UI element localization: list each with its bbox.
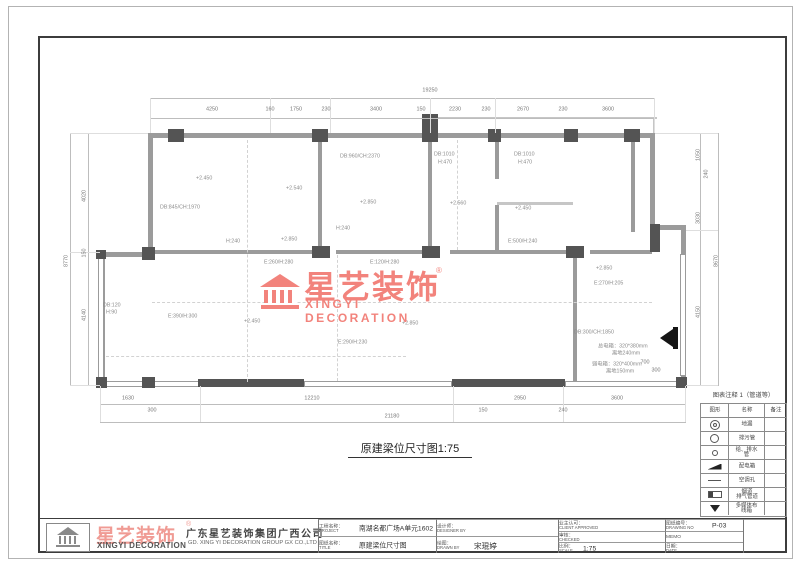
window [565,381,679,387]
multimedia-box-icon [710,505,720,512]
titleblock-cell-client: 业主认可：CLIENT APPROVED [558,519,665,531]
legend-name-cell: 排污管 [729,432,765,445]
column [422,246,440,258]
dimension-line [88,133,89,386]
company-name-en: GD. XING YI DECORATION GROUP GX CO.,LTD [188,539,317,545]
floor-drain-icon [710,420,720,430]
field-value: 宋琨婷 [474,539,497,550]
entry-arrow-icon [673,327,678,349]
column [564,129,578,142]
dimension-line [150,98,655,99]
dimension-line [70,133,71,386]
extension-line [686,230,718,231]
extension-line [654,98,655,133]
drawing-sheet: 1925021180425016017502303400150223023026… [0,0,800,564]
plan-label: DB:120 [103,302,121,308]
plan-label: H:90 [106,309,117,315]
window [304,381,452,387]
dim-label: 150 [416,106,425,112]
dim-label: 300 [651,367,660,373]
extension-line [430,98,431,133]
legend-name: 给、排水管 [735,447,759,458]
legend-note-cell [765,502,786,515]
dim-label: 2670 [517,106,529,112]
window [98,256,104,378]
legend-note-cell [765,418,786,431]
column [566,246,584,258]
titleblock-cell-blank [743,519,785,553]
water-pipe-icon [712,450,718,456]
extension-line [150,98,151,133]
legend-row: 空调孔 [701,474,786,488]
legend-header-row: 图形 名称 备注 [701,404,786,418]
plan-label: DB:300/CH:1850 [574,329,614,335]
plan-label: H:240 [336,225,350,231]
dim-label: 300 [147,407,156,413]
field-label: 日期：DATE [666,544,680,553]
column [624,129,640,142]
dim-label: 230 [481,106,490,112]
legend-name-cell: 多媒体布线箱 [729,502,765,515]
watermark-en-text: XINGYI DECORATION [305,297,456,325]
wall [573,254,577,382]
extension-line [270,98,271,133]
field-label-en: DRAWN BY [437,545,459,549]
wall [428,137,432,250]
extension-line [453,386,454,422]
field-label-en: CHECKED [559,537,580,541]
field-label-cn: 设计师： [437,524,466,529]
legend-symbol-cell [701,460,729,473]
legend-row: 烟道 排气管道 [701,488,786,502]
extension-line [495,98,496,133]
column [142,247,155,260]
dimension-line [150,118,655,119]
legend-name: 空调孔 [738,478,754,484]
wall [150,133,655,138]
wall [497,202,573,205]
dashed-reference-line [457,140,458,250]
company-logo-en: XINGYI DECORATION [97,541,186,550]
wall [336,250,436,254]
logo-base [56,545,80,547]
plan-label: +2.450 [515,205,531,211]
power-box-icon [708,464,722,470]
dashed-reference-line [106,356,406,357]
logo-roof [57,527,79,535]
logo-pillars [264,290,296,303]
plan-label: +2.450 [244,318,260,324]
wall [318,137,322,250]
dim-label: 1630 [122,395,134,401]
legend-name: 配电箱 [738,464,754,470]
dim-label: 2950 [514,395,526,401]
column [312,129,328,142]
plan-label: E:500/H:240 [508,238,537,244]
legend-note-cell [765,474,786,487]
legend-name-cell: 配电箱 [729,460,765,473]
extension-line [655,133,718,134]
titleblock-cell-designer: 设计师：DESIGNER BY [436,519,558,536]
legend-row: 多媒体布线箱 [701,502,786,515]
plan-label: +2.850 [281,236,297,242]
field-label-en: CLIENT APPROVED [559,526,598,530]
field-label: 图纸名称：TITLE [319,541,343,550]
dim-label: 150 [478,407,487,413]
field-label: 审核：CHECKED [559,533,580,542]
wall [495,137,499,179]
xingyi-watermark: 星艺装饰 ® XINGYI DECORATION [246,266,456,318]
plan-label: DB:1010 [514,151,535,157]
plan-label: E:390/H:300 [168,313,197,319]
title-block: 星艺装饰 ® XINGYI DECORATION 广东星艺装饰集团广西公司 GD… [40,518,785,553]
legend-name-cell: 烟道 排气管道 [729,488,765,501]
legend-symbol-cell [701,502,729,515]
dim-label: 12210 [304,395,319,401]
flue-icon [708,491,722,498]
titleblock-cell-scale: 比例：SCALE 1:75 [558,542,665,553]
dim-label: 240 [558,407,567,413]
legend-name: 排污管 [738,436,754,442]
legend-header-label: 备注 [770,408,781,414]
wall-segment [198,379,304,387]
legend-header-label: 名称 [741,408,752,414]
plan-label: +2.540 [286,185,302,191]
legend-row: 排污管 [701,432,786,446]
plan-label: H:240 [226,238,240,244]
legend-name-cell: 给、排水管 [729,446,765,459]
legend-symbol-cell [701,418,729,431]
dim-label: 700 [640,359,649,365]
legend-note-cell [765,460,786,473]
field-value: 南湖名都广场A单元1602 [359,523,433,532]
field-value: P-03 [712,522,726,530]
wall [590,250,652,254]
legend-symbol-cell [701,474,729,487]
column [96,377,107,388]
dim-label: 230 [558,106,567,112]
ac-hole-icon [708,480,721,481]
company-name-cn: 广东星艺装饰集团广西公司 [186,525,324,540]
wall-segment [452,379,565,387]
titleblock-cell-date: 日期：DATE [665,542,743,553]
plan-label: DB:845/CH:1970 [160,204,200,210]
legend-name: 地漏 [741,422,752,428]
field-label-en: DESIGNER BY [437,528,466,532]
legend-name: 多媒体布线箱 [735,503,759,514]
plan-label: 离地240mm [612,349,640,356]
plan-label: DB:960/CH:2370 [340,153,380,159]
field-label-en: PROJECT [319,528,343,532]
extension-line [100,386,101,422]
wall [450,250,576,254]
extension-line [685,386,686,422]
dim-label: 4150 [695,306,701,318]
legend-row: 配电箱 [701,460,786,474]
dim-label: 3600 [602,106,614,112]
wall [495,205,499,254]
legend-symbol-cell [701,488,729,501]
field-value: 1:75 [583,544,596,552]
field-label-en: SCALE [559,548,573,552]
plan-label: +2.850 [360,199,376,205]
plan-label: +2.850 [596,265,612,271]
plan-label: E:290/H:230 [338,339,367,345]
dim-label: 160 [265,106,274,112]
titleblock-cell-project: 工程名称：PROJECT 南湖名都广场A单元1602 [318,519,436,536]
logo-roof [260,274,300,287]
dim-label: 4140 [81,309,87,321]
legend-header-name: 名称 [729,404,765,417]
wall [152,250,322,254]
wall [148,133,153,257]
field-label-cn: MEMO [666,535,681,540]
logo-pillars [59,536,77,544]
extension-line [200,386,201,422]
legend-row: 地漏 [701,418,786,432]
legend-symbol-cell [701,432,729,445]
extension-line [563,386,564,422]
field-label-cn: 绘图： [437,541,459,546]
dim-label: 3600 [611,395,623,401]
field-value: 原建梁位尺寸图 [359,540,407,549]
titleblock-cell-memo: MEMO [665,531,743,542]
column [168,129,184,142]
dim-label: 1050 [695,149,701,161]
sewage-pipe-icon [710,434,719,443]
registered-mark: ® [436,266,442,275]
field-label-cn: 日期： [666,544,680,549]
legend-note-cell [765,488,786,501]
legend-name-cell: 空调孔 [729,474,765,487]
extension-line [70,385,100,386]
field-label-en: TITLE [319,545,343,549]
dim-label: 8670 [713,255,719,267]
legend-symbol-cell [701,446,729,459]
entry-arrow-icon [660,329,673,347]
plan-title: 原建梁位尺寸图1:75 [348,440,472,458]
plan-label: DB:1010 [434,151,455,157]
legend-rows: 地漏排污管给、排水管配电箱空调孔烟道 排气管道多媒体布线箱 [701,418,786,515]
xingyi-logo-icon [260,274,300,310]
field-label-cn: 图纸名称： [319,541,343,546]
dim-label: 4020 [81,190,87,202]
field-label-en: DATE [666,548,680,552]
xingyi-logo-icon [46,523,90,552]
field-label-cn: 审核： [559,533,580,538]
wall [650,133,655,230]
field-label: MEMO [666,535,681,540]
dim-label: 3400 [370,106,382,112]
field-label: 绘图：DRAWN BY [437,541,459,550]
logo-base [261,305,299,309]
field-label-cn: 工程名称： [319,524,343,529]
legend-name-cell: 地漏 [729,418,765,431]
field-label: 工程名称：PROJECT [319,524,343,533]
field-label-en: DRAWING NO [666,526,694,530]
legend-name: 烟道 排气管道 [736,489,758,500]
plan-label: E:260/H:280 [264,259,293,265]
dim-label: 230 [321,106,330,112]
field-label-cn: 比例： [559,544,573,549]
field-label: 业主认可：CLIENT APPROVED [559,521,598,530]
legend-note-cell [765,446,786,459]
dim-label: 1750 [290,106,302,112]
dim-label: 3030 [695,212,701,224]
dimension-line [100,422,686,423]
plan-label: +2.560 [450,200,466,206]
window [680,254,686,376]
dimension-line [700,133,701,386]
wall [631,137,635,232]
dim-label: 150 [81,248,87,257]
dim-label: 19250 [422,87,437,93]
dashed-reference-line [247,140,248,382]
column [312,246,330,258]
titleblock-cell-title: 图纸名称：TITLE 原建梁位尺寸图 [318,536,436,553]
plan-label: H:470 [518,159,532,165]
legend-grid: 图形 名称 备注 地漏排污管给、排水管配电箱空调孔烟道 排气管道多媒体布线箱 [700,403,787,517]
legend-header-label: 图形 [709,408,720,414]
dim-label: 4250 [206,106,218,112]
field-label: 比例：SCALE [559,544,573,553]
column [650,224,660,252]
titleblock-cell-drawing-no: 图纸编号：DRAWING NO P-03 [665,519,743,531]
extension-line [330,98,331,133]
legend-header-symbol: 图形 [701,404,729,417]
field-label: 设计师：DESIGNER BY [437,524,466,533]
plan-label: H:470 [438,159,452,165]
legend-note-cell [765,432,786,445]
titleblock-cell-drawn: 绘图：DRAWN BY 宋琨婷 [436,536,558,553]
plan-label: E:270/H:205 [594,280,623,286]
extension-line [686,385,718,386]
legend-header-note: 备注 [765,404,786,417]
legend-title: 图表注释 1（管道等） [710,391,778,400]
dim-label: 240 [703,169,709,178]
legend-table: 图表注释 1（管道等） 图形 名称 备注 地漏排污管给、排水管配电箱空调孔烟道 … [700,391,787,518]
dim-label: 21180 [385,413,400,419]
column [142,377,155,388]
extension-line [70,133,148,134]
dim-label: 2230 [449,106,461,112]
dim-label: 8770 [63,255,69,267]
plan-label: 离地150mm [606,367,634,374]
dimension-line [100,404,686,405]
plan-label: +2.450 [196,175,212,181]
legend-row: 给、排水管 [701,446,786,460]
titleblock-cell-checked: 审核：CHECKED [558,531,665,542]
field-label: 图纸编号：DRAWING NO [666,521,694,530]
